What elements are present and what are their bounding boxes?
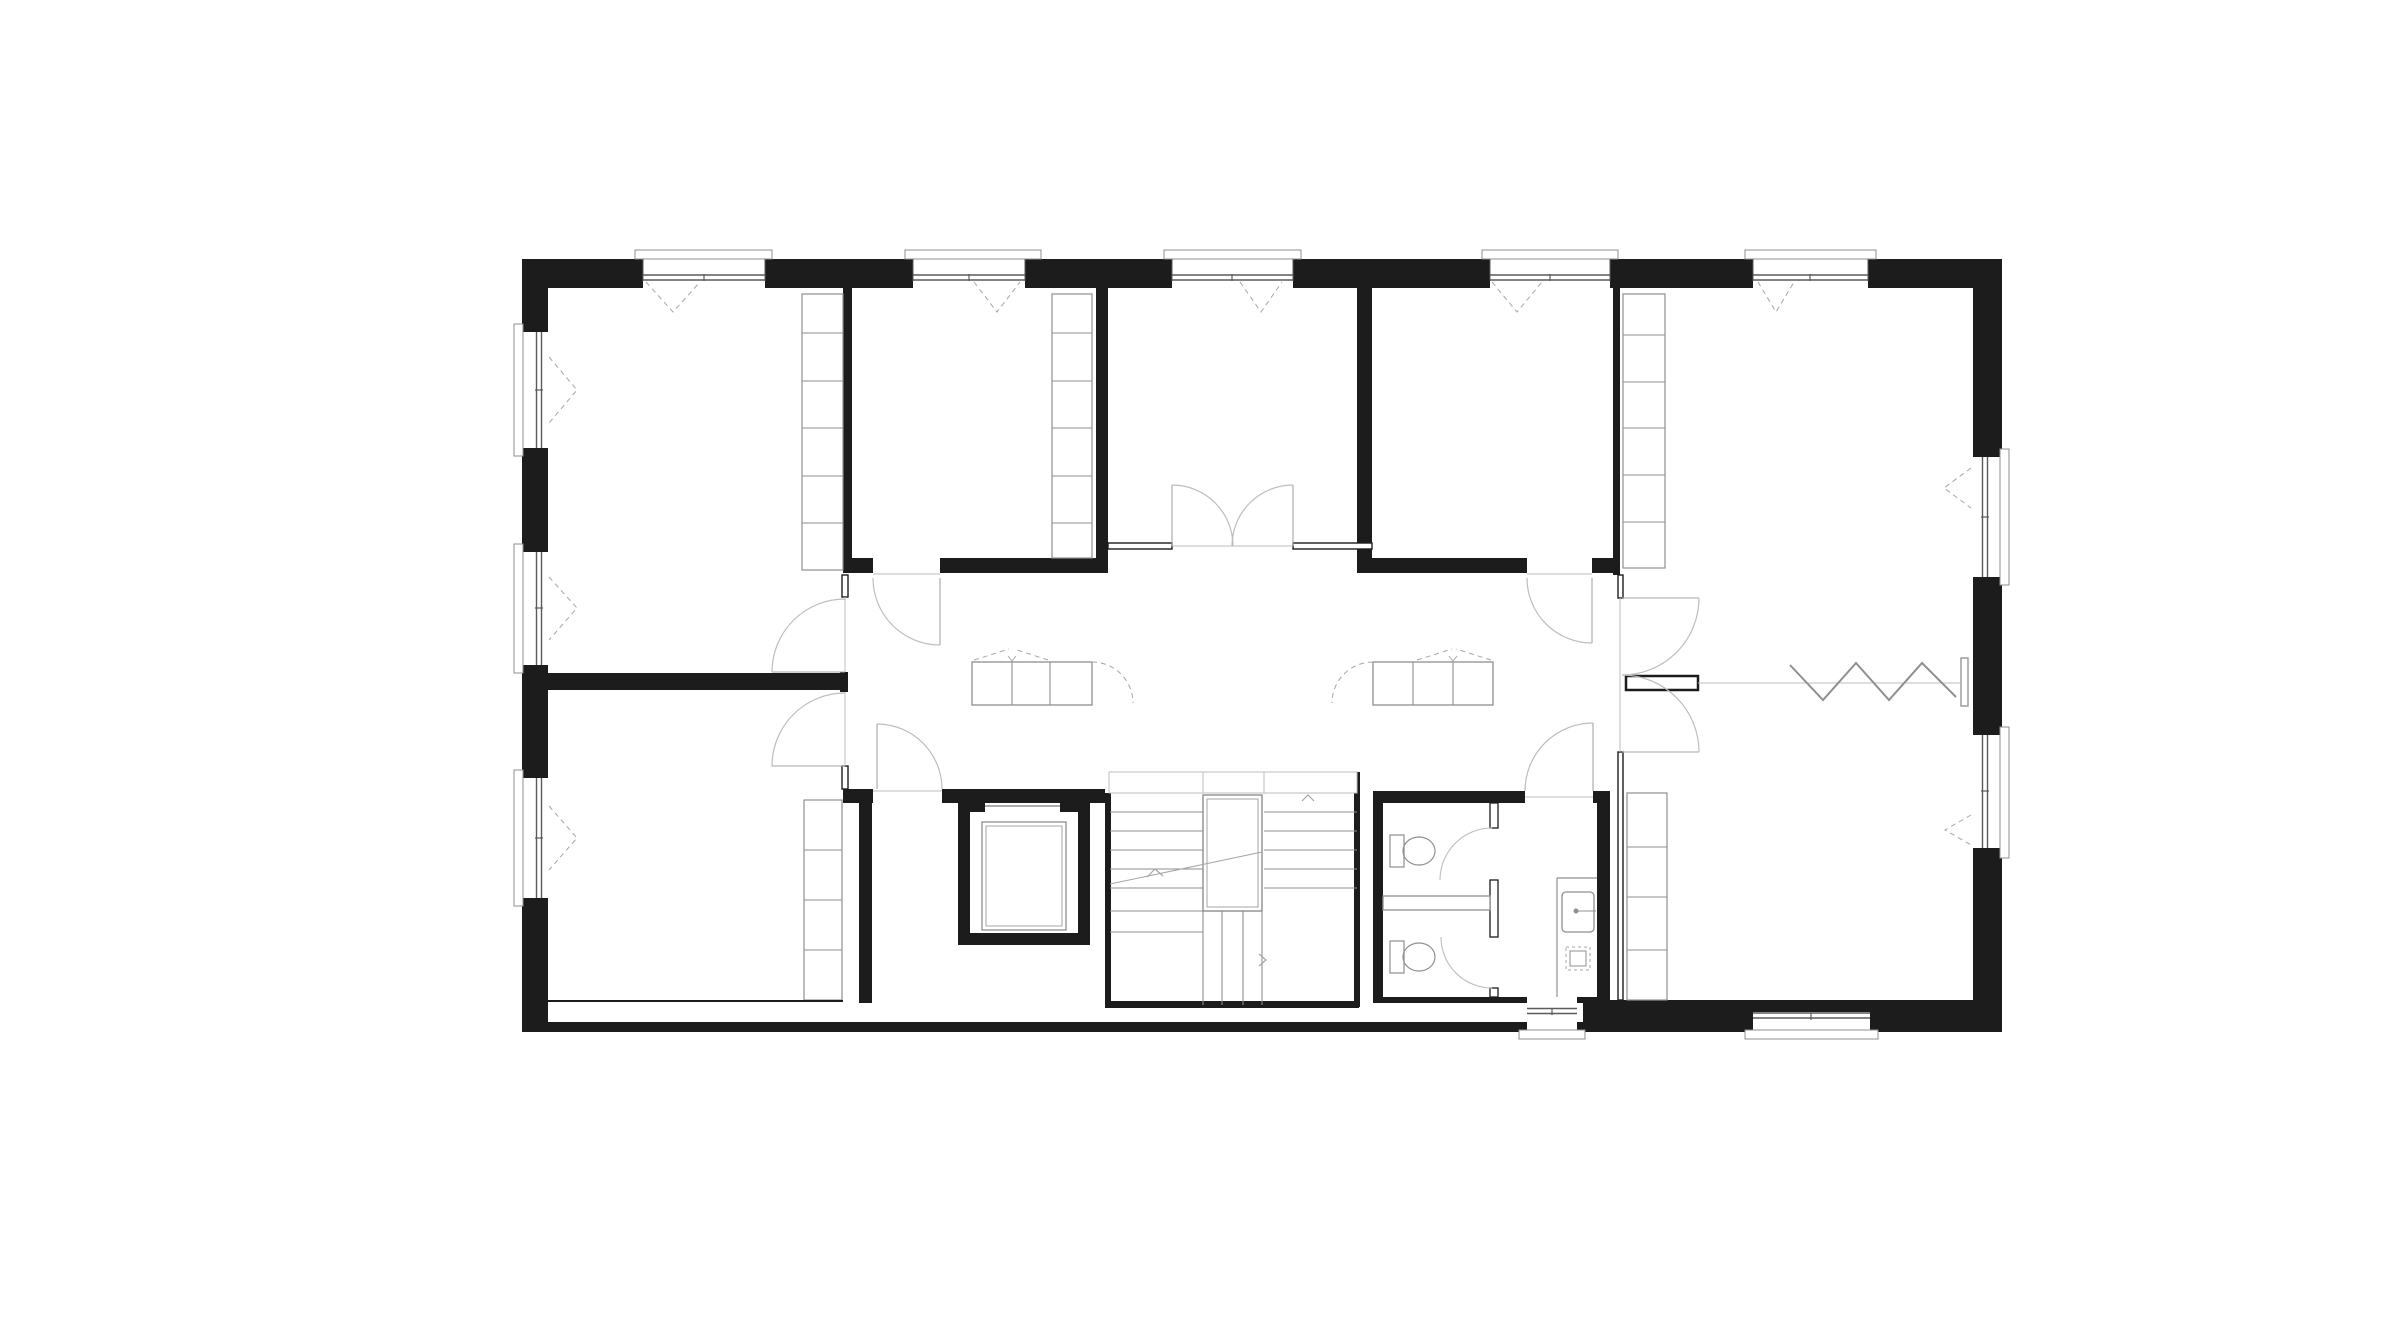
wall-wc-south bbox=[1577, 997, 1610, 1003]
cabinet-flap-dashed bbox=[1456, 649, 1491, 660]
bottom-wall bbox=[1870, 1012, 1973, 1022]
folding-partition-endplate bbox=[1961, 658, 1968, 706]
floor-plan-canvas bbox=[0, 0, 2400, 1328]
wall-stair-south bbox=[1105, 1001, 1359, 1008]
wall-room2-room3 bbox=[1096, 288, 1108, 573]
right-wall bbox=[1973, 577, 2002, 735]
toilet-bowl bbox=[1403, 943, 1435, 971]
wall-stair-west bbox=[1105, 793, 1111, 1007]
cabinet-mark bbox=[1008, 656, 1016, 661]
wall-lobby-west bbox=[859, 803, 872, 1003]
bottom-wall bbox=[1583, 1012, 1753, 1022]
top-wall bbox=[1610, 259, 1753, 288]
right-wall bbox=[1973, 848, 2002, 1032]
partition-wc-stall bbox=[1490, 803, 1498, 828]
stair-arrow-up bbox=[1302, 795, 1314, 801]
casement-swing bbox=[549, 577, 577, 640]
door-swing-lobby bbox=[877, 724, 942, 789]
window-lintel bbox=[514, 324, 523, 456]
wall-wc-north bbox=[1373, 791, 1525, 803]
left-wall bbox=[522, 259, 548, 332]
door-swing-room2 bbox=[873, 578, 940, 645]
cabinet-mark bbox=[1449, 656, 1457, 661]
right-wall bbox=[1973, 259, 2002, 457]
wc-fixture bbox=[1570, 951, 1586, 966]
wall-junction bbox=[840, 672, 848, 692]
casement-swing bbox=[549, 357, 577, 423]
window-lintel bbox=[1745, 1030, 1878, 1039]
door-swing-room3-right bbox=[1232, 485, 1293, 546]
window-lintel bbox=[2000, 727, 2009, 858]
wall-elevator-shaft bbox=[958, 933, 1090, 945]
cabinet-door-swing-dashed bbox=[1332, 662, 1373, 703]
window-lintel bbox=[2000, 449, 2009, 585]
door-swing-room3-left bbox=[1172, 485, 1233, 546]
casement-swing bbox=[1944, 468, 1971, 508]
bottom-wall bbox=[522, 1022, 1527, 1032]
glazed-wall-room3 bbox=[1293, 543, 1372, 549]
top-wall bbox=[1025, 259, 1172, 288]
casement-swing bbox=[646, 282, 700, 312]
door-swing-room4 bbox=[1527, 578, 1592, 643]
partition-stall-divider bbox=[1383, 896, 1490, 910]
wall-stub-partition bbox=[1626, 676, 1698, 690]
elevator-car-inner bbox=[986, 826, 1062, 926]
partition-hall-west bbox=[842, 575, 848, 597]
wardrobe-room2 bbox=[1052, 294, 1092, 558]
toilet-bowl bbox=[1403, 837, 1435, 865]
left-wall bbox=[522, 898, 548, 1032]
wall-elevator-shaft bbox=[958, 800, 970, 945]
wall-wc-west bbox=[1373, 791, 1383, 1003]
door-swing-room-ne-upper bbox=[1622, 598, 1699, 675]
window-lintel bbox=[635, 250, 772, 259]
partition-wc-stall bbox=[1490, 880, 1498, 937]
wall-room2-south bbox=[940, 558, 1108, 573]
cabinet-door-swing-dashed bbox=[1092, 662, 1133, 703]
casement-swing bbox=[1492, 282, 1542, 312]
casement-swing bbox=[1945, 815, 1971, 845]
door-swing-room1 bbox=[772, 599, 845, 672]
window-lintel bbox=[905, 250, 1041, 259]
wall-wc-east bbox=[1597, 791, 1610, 1003]
stair-upper-flight bbox=[1109, 772, 1357, 793]
wall-elevator-shaft bbox=[1078, 800, 1090, 945]
door-swing-stall-upper bbox=[1440, 828, 1492, 880]
window-lintel bbox=[1519, 1030, 1585, 1039]
toilet-tank bbox=[1390, 835, 1404, 867]
window-lintel bbox=[1164, 250, 1301, 259]
wall-wc-south bbox=[1373, 997, 1527, 1003]
top-wall bbox=[765, 259, 913, 288]
door-swing-wc bbox=[1525, 723, 1593, 791]
wall-room3-room4 bbox=[1357, 288, 1372, 573]
door-swing-room-sw bbox=[772, 693, 845, 766]
hall-cabinet-right bbox=[1373, 662, 1493, 705]
partition-hall-east bbox=[1618, 575, 1623, 598]
partition-hall-west bbox=[842, 766, 848, 789]
door-swing-stall-lower bbox=[1441, 937, 1492, 988]
hall-cabinet-left bbox=[972, 662, 1092, 705]
top-wall bbox=[1293, 259, 1490, 288]
cabinet-flap-dashed bbox=[1417, 649, 1452, 660]
floor-plan-page bbox=[0, 0, 2400, 1328]
toilet-tank bbox=[1390, 941, 1404, 973]
washbasin-faucet-dot bbox=[1574, 909, 1579, 914]
window-lintel bbox=[514, 544, 523, 673]
casement-swing bbox=[549, 806, 577, 870]
wall-room1-room2 bbox=[843, 288, 852, 573]
window-lintel bbox=[1745, 250, 1876, 259]
casement-swing bbox=[974, 282, 1020, 312]
stair-well-rail bbox=[1207, 799, 1258, 907]
partition-hall-east bbox=[1618, 752, 1623, 1000]
folding-partition-zigzag bbox=[1790, 663, 1956, 700]
cabinet-flap-dashed bbox=[974, 649, 1009, 660]
glazed-wall-room3 bbox=[1108, 543, 1172, 549]
left-wall bbox=[522, 665, 548, 778]
wardrobe-room1 bbox=[802, 294, 843, 570]
wall-room4-south bbox=[1372, 558, 1527, 573]
window-lintel bbox=[514, 770, 523, 906]
wall-hall-south bbox=[843, 789, 873, 803]
wall-room4-south bbox=[1592, 558, 1620, 573]
casement-swing bbox=[1758, 282, 1794, 312]
partition-wc-stall bbox=[1490, 988, 1498, 997]
window-lintel bbox=[1482, 250, 1618, 259]
wall-left-divider bbox=[548, 673, 842, 690]
cabinet-flap-dashed bbox=[1014, 649, 1048, 660]
casement-swing bbox=[1240, 282, 1282, 312]
bottom-wall bbox=[1577, 1022, 1753, 1032]
wall-room2-south bbox=[843, 558, 873, 573]
left-wall bbox=[522, 448, 548, 552]
bottom-wall bbox=[1870, 1022, 2002, 1032]
bottom-wall-lintel bbox=[1583, 1000, 1973, 1012]
wall-room4-east bbox=[1613, 288, 1620, 575]
wall-stair-east bbox=[1354, 772, 1360, 1007]
